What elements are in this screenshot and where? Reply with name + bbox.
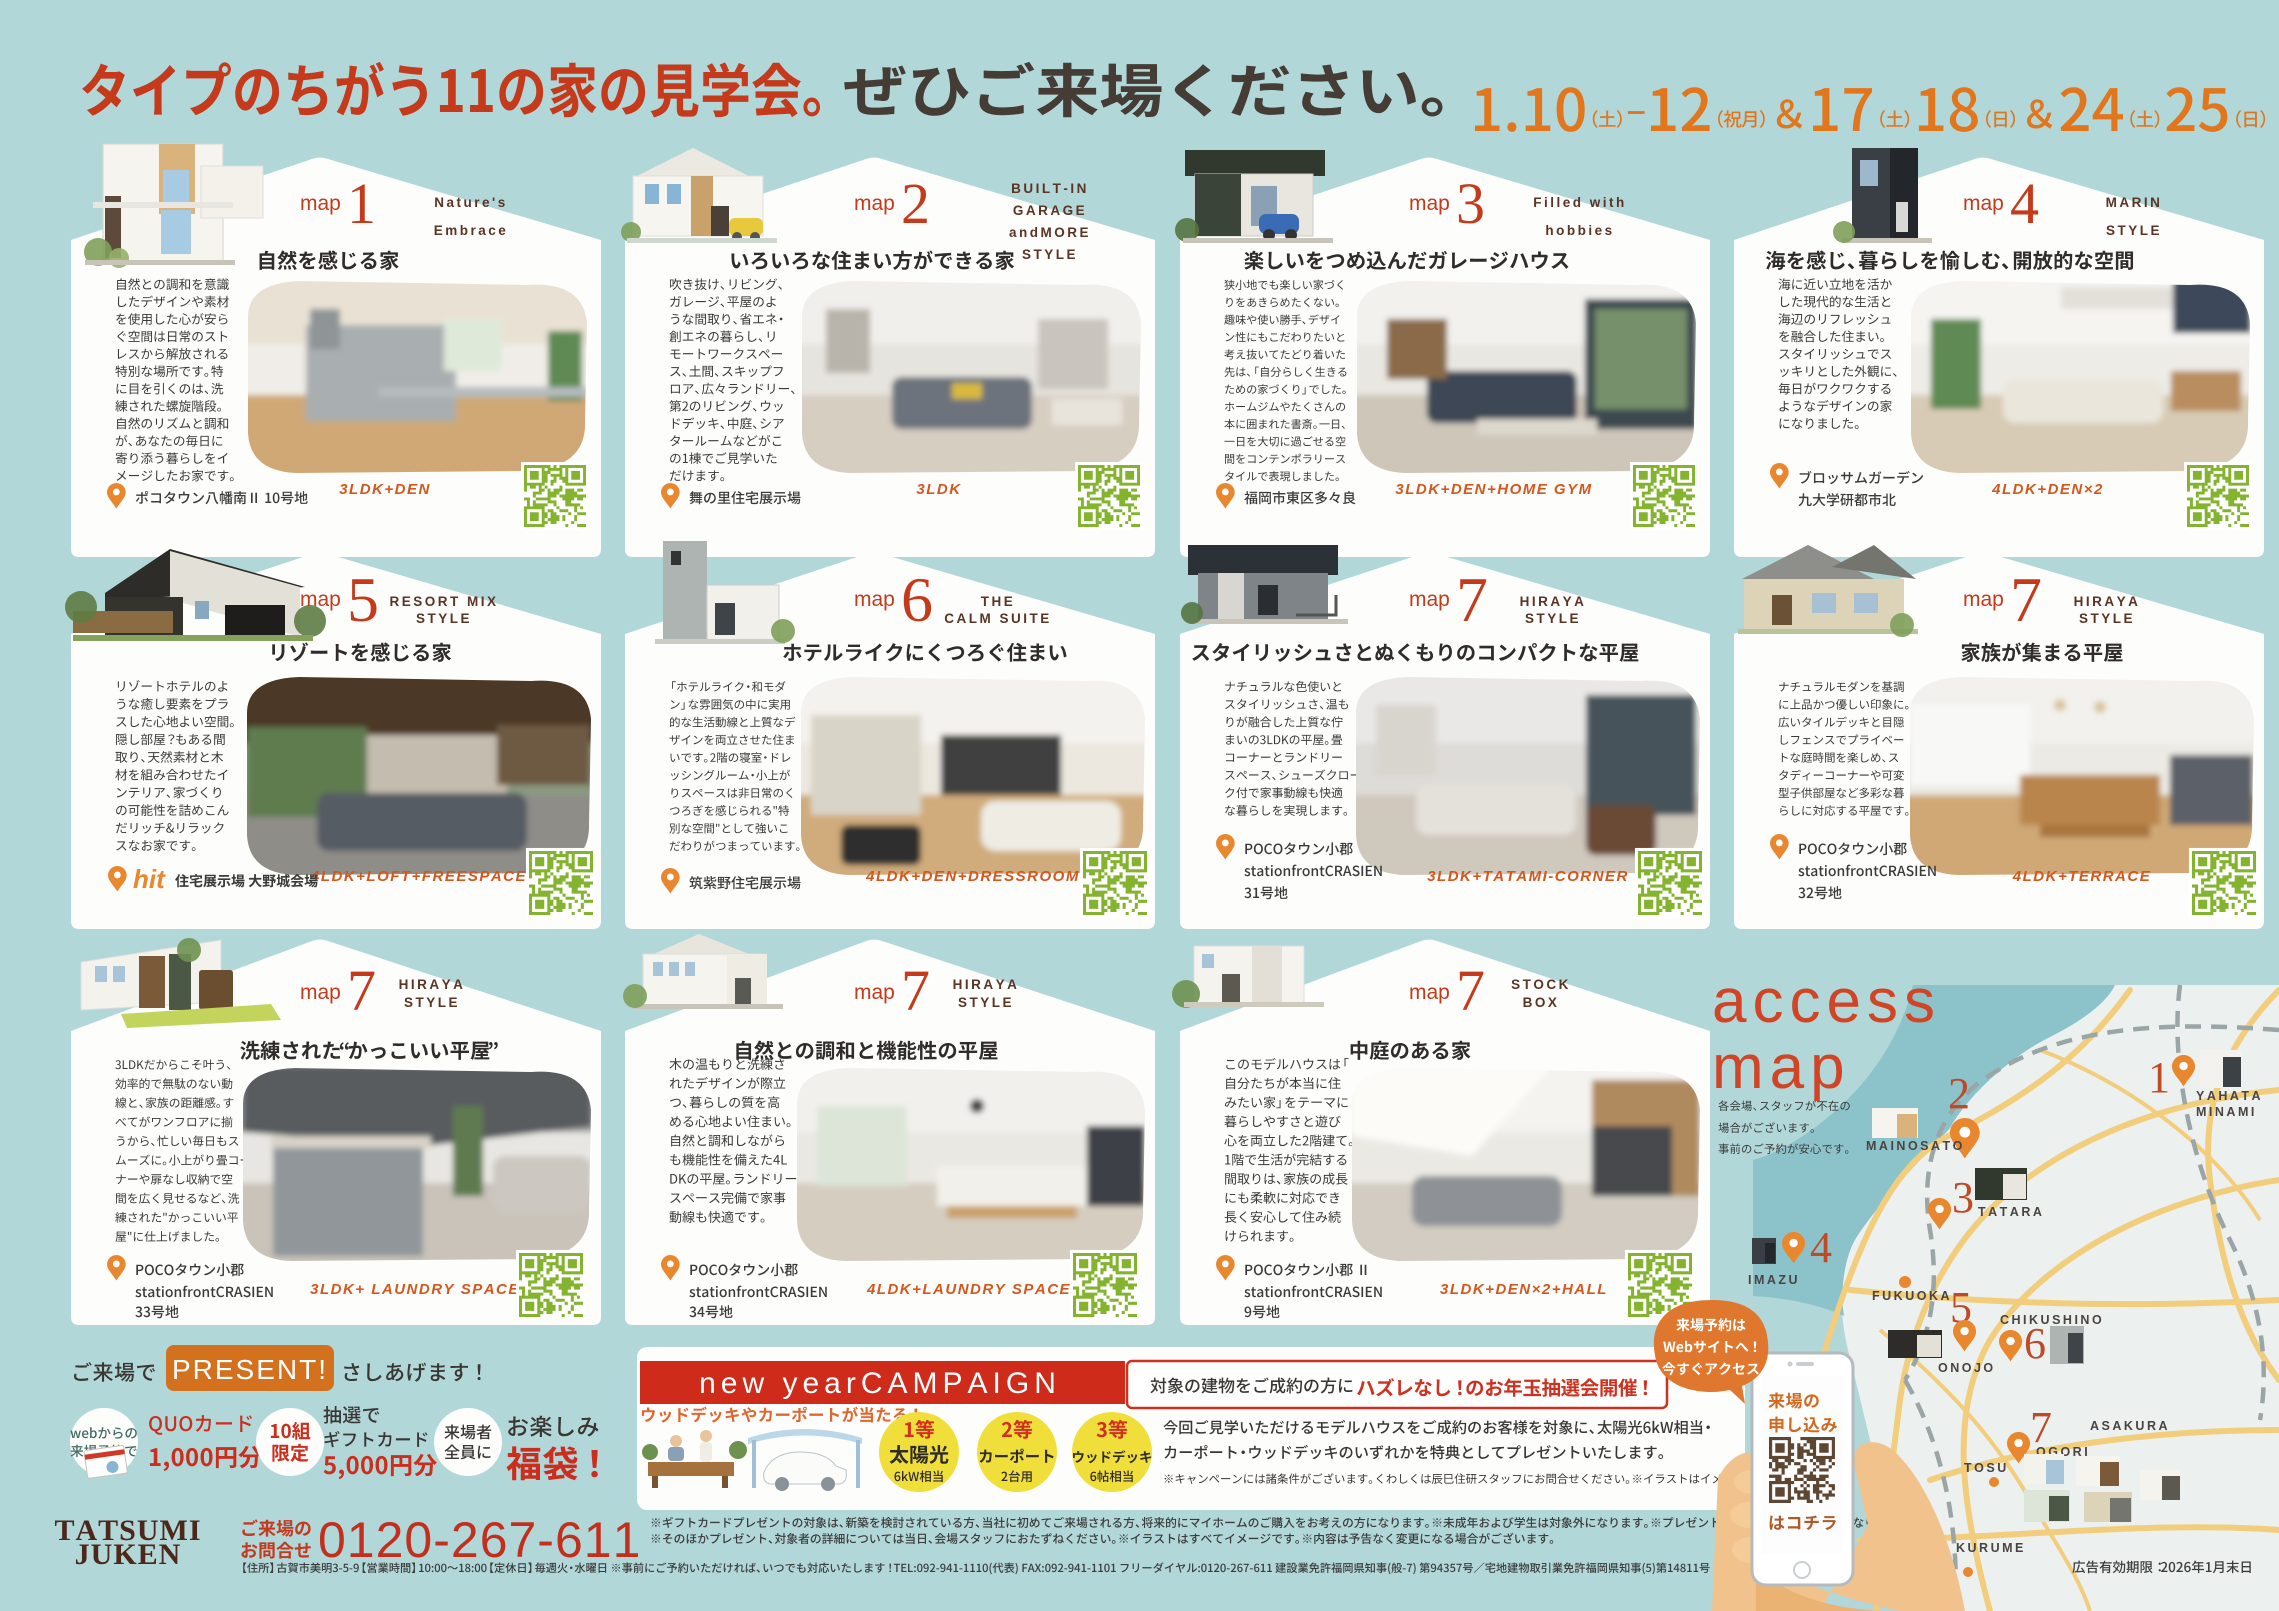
svg-text:HIRAYA: HIRAYA [1520, 594, 1587, 609]
svg-text:STYLE: STYLE [416, 611, 472, 626]
svg-text:TATARA: TATARA [1978, 1205, 2044, 1219]
svg-text:4LDK+LAUNDRY SPACE: 4LDK+LAUNDRY SPACE [866, 1281, 1071, 1298]
svg-text:RESORT MIX: RESORT MIX [389, 594, 498, 609]
svg-text:access: access [1712, 967, 1941, 1036]
svg-text:map: map [854, 588, 895, 611]
svg-text:3: 3 [1952, 1173, 1974, 1222]
svg-text:5: 5 [347, 564, 379, 635]
svg-text:Filled with: Filled with [1533, 195, 1627, 210]
svg-text:KURUME: KURUME [1956, 1541, 2026, 1555]
svg-text:map: map [854, 192, 895, 215]
svg-text:STYLE: STYLE [2079, 611, 2135, 626]
svg-text:0120-267-611: 0120-267-611 [318, 1512, 641, 1568]
svg-text:HIRAYA: HIRAYA [2074, 594, 2141, 609]
svg-text:hobbies: hobbies [1545, 223, 1614, 238]
svg-text:6: 6 [901, 564, 933, 635]
svg-text:Nature's: Nature's [434, 195, 507, 210]
svg-text:map: map [854, 981, 895, 1004]
svg-text:HIRAYA: HIRAYA [399, 977, 466, 992]
svg-text:1: 1 [347, 171, 376, 236]
svg-text:7: 7 [1456, 958, 1485, 1023]
svg-text:JUKEN: JUKEN [75, 1538, 182, 1571]
svg-text:TOSU: TOSU [1964, 1461, 2009, 1475]
svg-text:map: map [1409, 192, 1450, 215]
svg-text:IMAZU: IMAZU [1748, 1273, 1800, 1287]
svg-text:FUKUOKA: FUKUOKA [1872, 1289, 1952, 1303]
svg-text:3LDK+ LAUNDRY SPACE: 3LDK+ LAUNDRY SPACE [310, 1281, 520, 1298]
svg-text:CHIKUSHINO: CHIKUSHINO [2000, 1313, 2104, 1327]
svg-text:andMORE: andMORE [1009, 225, 1091, 240]
svg-text:GARAGE: GARAGE [1013, 203, 1087, 218]
svg-text:YAHATA: YAHATA [2196, 1089, 2263, 1103]
svg-text:map: map [1409, 588, 1450, 611]
svg-text:BOX: BOX [1523, 995, 1560, 1010]
svg-text:THE: THE [981, 594, 1016, 609]
svg-text:4: 4 [2010, 171, 2039, 236]
svg-text:STYLE: STYLE [958, 995, 1014, 1010]
svg-text:STYLE: STYLE [1022, 247, 1078, 262]
svg-text:new yearCAMPAIGN: new yearCAMPAIGN [699, 1367, 1061, 1400]
svg-text:3: 3 [1456, 171, 1485, 236]
svg-text:map: map [1409, 981, 1450, 1004]
svg-text:7: 7 [2010, 564, 2042, 635]
svg-text:map: map [300, 981, 341, 1004]
svg-text:ONOJO: ONOJO [1938, 1361, 1996, 1375]
svg-text:3LDK: 3LDK [916, 481, 961, 498]
svg-text:7: 7 [1456, 564, 1488, 635]
svg-text:hit: hit [133, 864, 166, 894]
svg-text:4LDK+TERRACE: 4LDK+TERRACE [2012, 868, 2151, 885]
svg-text:1: 1 [2148, 1053, 2170, 1102]
svg-text:STYLE: STYLE [404, 995, 460, 1010]
svg-text:3LDK+DEN: 3LDK+DEN [339, 481, 431, 498]
svg-text:4LDK+DEN×2: 4LDK+DEN×2 [1991, 481, 2104, 498]
svg-text:4: 4 [1810, 1223, 1832, 1272]
svg-text:ASAKURA: ASAKURA [2090, 1419, 2170, 1433]
svg-text:map: map [300, 588, 341, 611]
svg-text:map: map [1963, 588, 2004, 611]
svg-text:STYLE: STYLE [2106, 223, 2162, 238]
svg-text:3LDK+DEN+HOME GYM: 3LDK+DEN+HOME GYM [1395, 481, 1592, 498]
svg-text:4LDK+DEN+DRESSROOM: 4LDK+DEN+DRESSROOM [865, 868, 1080, 885]
svg-text:STYLE: STYLE [1525, 611, 1581, 626]
svg-text:STOCK: STOCK [1511, 977, 1571, 992]
svg-text:MARIN: MARIN [2106, 195, 2163, 210]
svg-text:BUILT-IN: BUILT-IN [1011, 181, 1089, 196]
svg-text:3LDK+DEN×2+HALL: 3LDK+DEN×2+HALL [1440, 1281, 1608, 1298]
svg-text:Embrace: Embrace [434, 223, 509, 238]
svg-text:CALM SUITE: CALM SUITE [944, 611, 1052, 626]
svg-text:MAINOSATO: MAINOSATO [1866, 1139, 1965, 1153]
svg-text:2: 2 [1948, 1069, 1970, 1118]
svg-text:7: 7 [347, 958, 376, 1023]
svg-text:map: map [1963, 192, 2004, 215]
svg-text:4LDK+LOFT+FREESPACE: 4LDK+LOFT+FREESPACE [310, 868, 527, 885]
svg-text:map: map [1712, 1033, 1851, 1102]
svg-text:2: 2 [901, 171, 930, 236]
svg-text:PRESENT!: PRESENT! [172, 1354, 328, 1385]
svg-text:map: map [300, 192, 341, 215]
svg-text:3LDK+TATAMI-CORNER: 3LDK+TATAMI-CORNER [1427, 868, 1629, 885]
svg-text:MINAMI: MINAMI [2196, 1105, 2257, 1119]
svg-text:HIRAYA: HIRAYA [953, 977, 1020, 992]
svg-text:7: 7 [901, 958, 930, 1023]
